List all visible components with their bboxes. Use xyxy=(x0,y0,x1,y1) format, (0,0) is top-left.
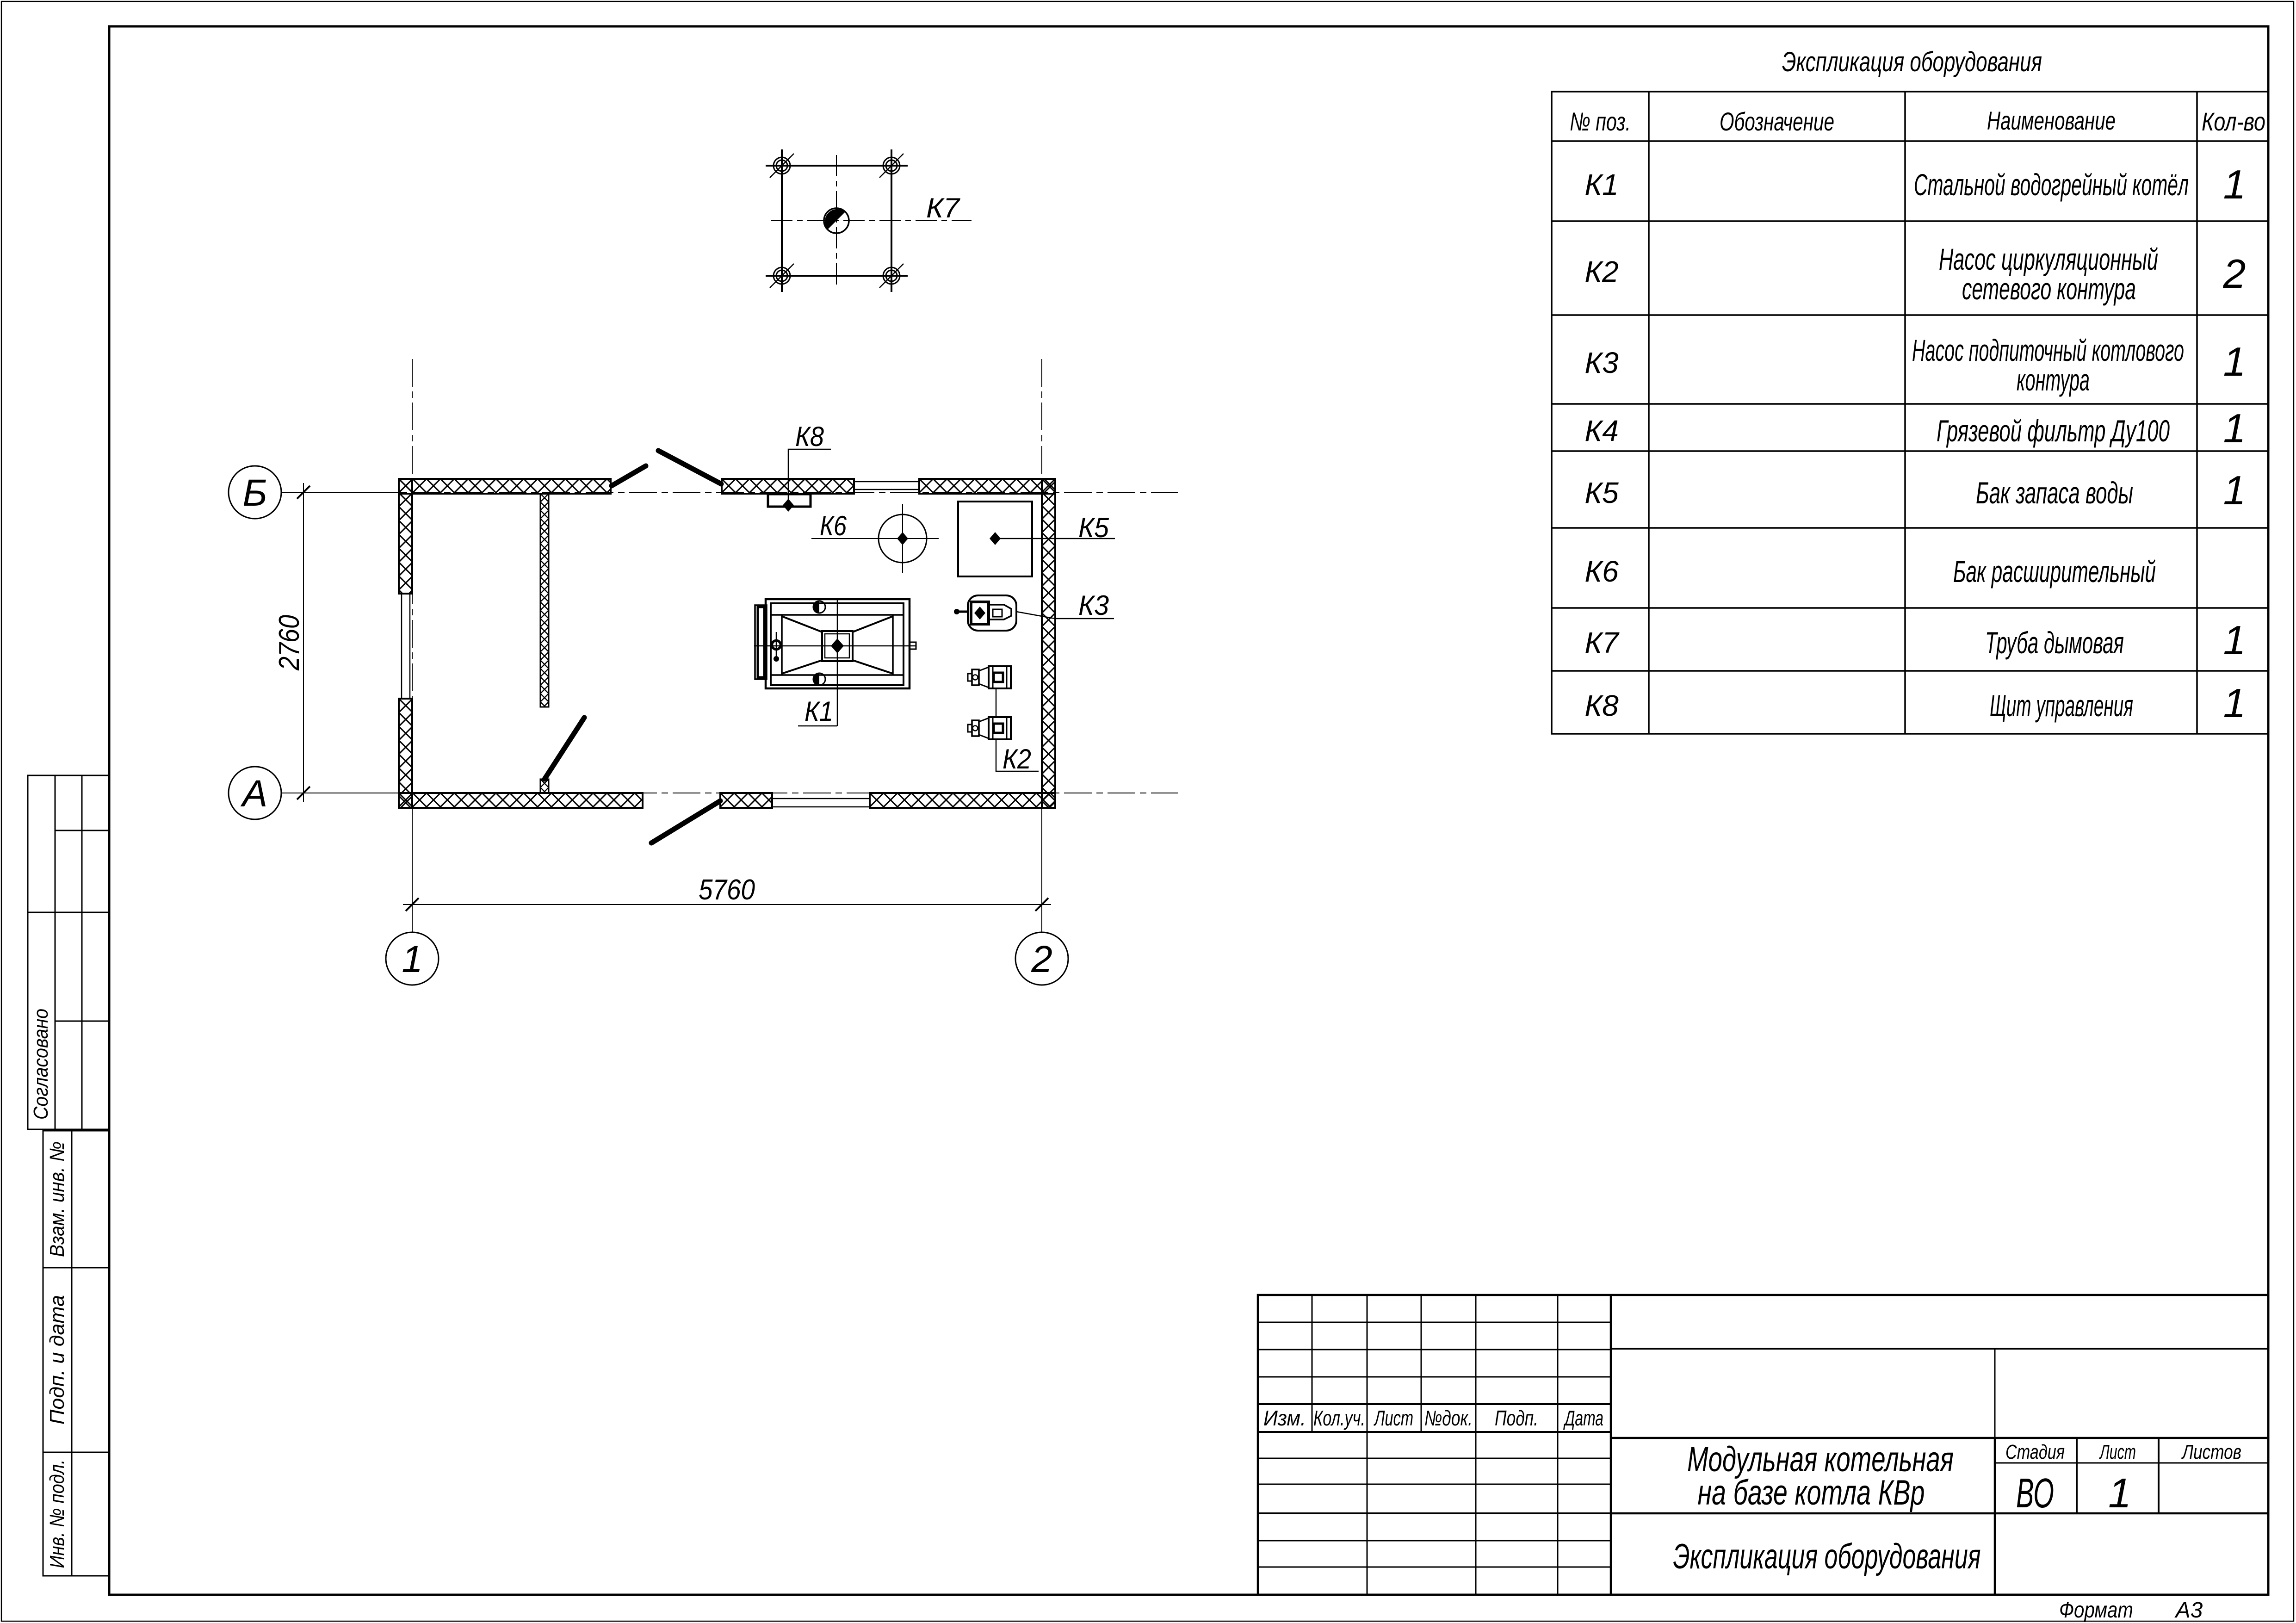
svg-text:Наименование: Наименование xyxy=(1987,106,2116,135)
svg-text:Изм.: Изм. xyxy=(1263,1406,1306,1430)
svg-text:К4: К4 xyxy=(1584,414,1618,447)
svg-text:К7: К7 xyxy=(926,192,961,223)
svg-text:Лист: Лист xyxy=(1374,1406,1413,1430)
svg-text:Бак расширительный: Бак расширительный xyxy=(1953,554,2156,588)
svg-text:А3: А3 xyxy=(2174,1598,2203,1623)
svg-text:К6: К6 xyxy=(820,510,847,541)
svg-text:ВО: ВО xyxy=(2016,1470,2054,1517)
svg-text:Лист: Лист xyxy=(2099,1441,2136,1463)
svg-text:Кол.уч.: Кол.уч. xyxy=(1313,1406,1365,1430)
svg-text:К8: К8 xyxy=(795,421,824,452)
svg-text:Кол-во: Кол-во xyxy=(2202,107,2265,136)
svg-text:Подп.: Подп. xyxy=(1495,1406,1538,1430)
svg-text:А: А xyxy=(240,773,268,815)
svg-text:Труба дымовая: Труба дымовая xyxy=(1985,626,2124,660)
svg-text:К7: К7 xyxy=(1584,626,1620,659)
svg-text:сетевого контура: сетевого контура xyxy=(1962,272,2136,306)
svg-text:К5: К5 xyxy=(1584,476,1619,509)
svg-text:Экспликация оборудования: Экспликация оборудования xyxy=(1673,1537,1981,1576)
svg-text:Бак запаса воды: Бак запаса воды xyxy=(1976,476,2133,510)
svg-text:1: 1 xyxy=(2223,161,2246,207)
svg-text:К3: К3 xyxy=(1584,346,1619,379)
svg-text:контура: контура xyxy=(2017,363,2090,397)
svg-text:Согласовано: Согласовано xyxy=(30,1009,52,1120)
svg-text:К1: К1 xyxy=(1584,168,1618,201)
svg-text:2: 2 xyxy=(2223,251,2246,297)
svg-text:2760: 2760 xyxy=(273,615,305,671)
svg-text:Б: Б xyxy=(242,472,267,514)
svg-text:К2: К2 xyxy=(1003,743,1031,774)
svg-text:Листов: Листов xyxy=(2181,1441,2241,1463)
svg-text:1: 1 xyxy=(2223,467,2246,513)
svg-text:Взам. инв. №: Взам. инв. № xyxy=(46,1141,68,1257)
svg-text:Подп. и дата: Подп. и дата xyxy=(46,1295,68,1425)
svg-text:5760: 5760 xyxy=(699,874,755,906)
svg-text:Экспликация оборудования: Экспликация оборудования xyxy=(1782,46,2042,77)
svg-text:К2: К2 xyxy=(1584,255,1618,288)
svg-text:Обозначение: Обозначение xyxy=(1720,107,1834,136)
svg-text:№ поз.: № поз. xyxy=(1570,107,1631,136)
svg-text:К3: К3 xyxy=(1078,590,1109,621)
svg-text:Насос подпиточный котлового: Насос подпиточный котлового xyxy=(1912,333,2184,367)
svg-text:Формат: Формат xyxy=(2059,1598,2133,1623)
svg-text:1: 1 xyxy=(2223,339,2246,384)
svg-text:2: 2 xyxy=(1031,938,1052,980)
svg-text:К8: К8 xyxy=(1584,689,1619,722)
svg-text:на базе котла КВр: на базе котла КВр xyxy=(1698,1473,1925,1512)
svg-text:1: 1 xyxy=(402,938,423,980)
svg-text:К5: К5 xyxy=(1078,512,1109,543)
svg-text:К1: К1 xyxy=(805,696,833,727)
svg-text:1: 1 xyxy=(2223,680,2246,726)
svg-text:1: 1 xyxy=(2223,405,2246,451)
svg-text:1: 1 xyxy=(2108,1470,2131,1517)
svg-text:Стадия: Стадия xyxy=(2005,1441,2065,1463)
svg-text:Щит управления: Щит управления xyxy=(1990,688,2133,723)
svg-text:Грязевой фильтр Ду100: Грязевой фильтр Ду100 xyxy=(1937,414,2170,448)
svg-text:Инв. № подл.: Инв. № подл. xyxy=(46,1460,68,1568)
svg-text:Стальной водогрейный котёл: Стальной водогрейный котёл xyxy=(1914,167,2189,202)
svg-text:К6: К6 xyxy=(1584,555,1619,588)
svg-text:№док.: №док. xyxy=(1424,1406,1473,1430)
svg-text:Насос циркуляционный: Насос циркуляционный xyxy=(1939,242,2158,276)
svg-text:1: 1 xyxy=(2223,617,2246,663)
svg-text:Дата: Дата xyxy=(1563,1406,1603,1430)
